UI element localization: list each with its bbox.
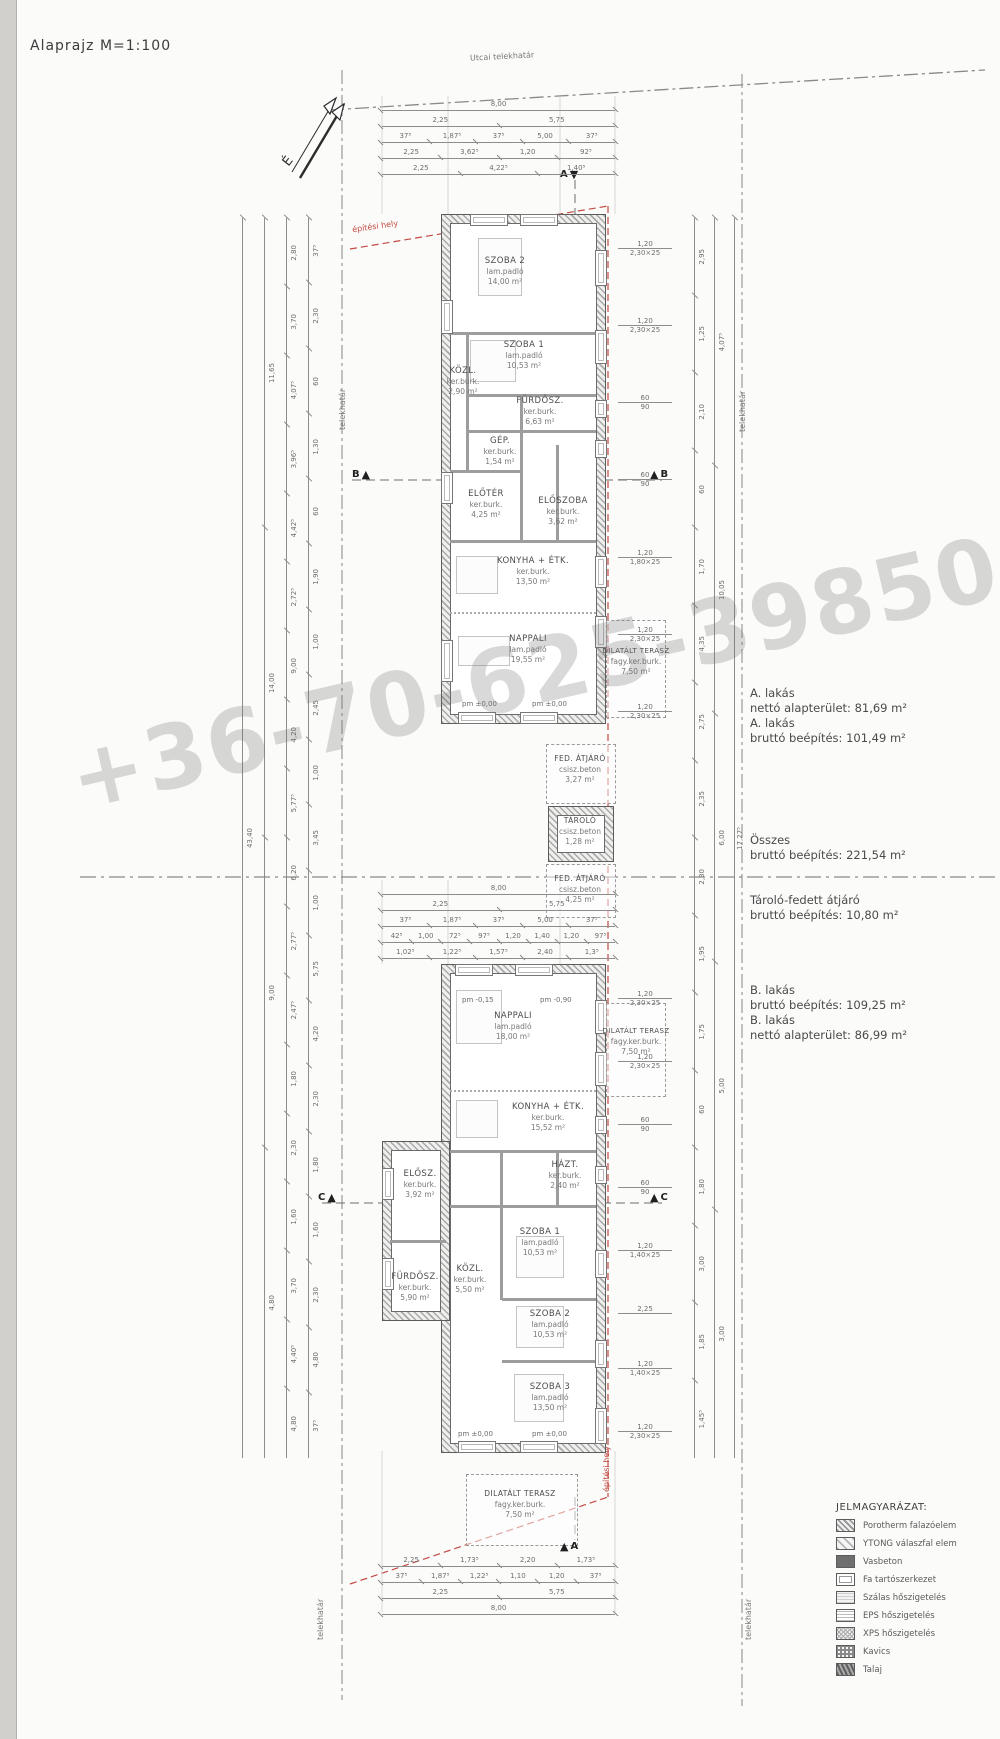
window-dim: 1,202,30×25: [618, 626, 672, 643]
dimension-segment: 5,75: [309, 936, 323, 1001]
dimension-value: 37⁵: [576, 1572, 615, 1583]
partition: [390, 1240, 446, 1243]
window: [458, 1441, 496, 1453]
section-triangle-icon: ▲: [362, 468, 370, 481]
room-area: 3,62 m²: [548, 517, 577, 526]
room-area: 10,53 m²: [533, 1330, 567, 1339]
window: [520, 214, 558, 226]
legend-swatch-icon: [836, 1519, 855, 1532]
dimension-segment: 4,42⁵: [287, 494, 301, 563]
legend-swatch-icon: [836, 1555, 855, 1568]
legend-row: Talaj: [836, 1663, 996, 1676]
room-area: 3,92 m²: [405, 1190, 434, 1199]
partition: [556, 445, 559, 543]
room-label: SZOBA 3 lam.padló 13,50 m²: [530, 1382, 570, 1414]
dimension-value: 2,30: [312, 1091, 320, 1107]
dimension-segment: 1,90: [309, 544, 323, 609]
legend-swatch-icon: [836, 1645, 855, 1658]
room-finish: lam.padló: [531, 1320, 568, 1329]
dimension-segment: 4,20: [287, 700, 301, 769]
window-width: 1,20: [618, 240, 672, 249]
dimension-value: 1,25: [698, 326, 706, 342]
room-name: NAPPALI: [509, 634, 547, 644]
dimension-value: 1,00: [312, 765, 320, 781]
dimension-chain: 2,253,62⁵1,2092⁵: [382, 148, 615, 159]
annotation-line: A. lakás: [750, 716, 907, 731]
room-area: 14,00 m²: [488, 277, 522, 286]
dimension-chain: 2,255,75: [382, 1588, 615, 1599]
room-name: KÖZL.: [456, 1264, 483, 1274]
dimension-chain-vertical: 2,951,252,10601,704,352,752,352,301,951,…: [694, 218, 709, 1458]
dimension-value: 4,20: [290, 727, 298, 743]
dimension-chain: 37⁵1,87⁵37⁵5,0037⁵: [382, 916, 615, 927]
dimension-value: 3,00: [698, 1256, 706, 1272]
legend-label: Fa tartószerkezet: [863, 1575, 936, 1585]
dimension-value: 4,20: [312, 1026, 320, 1042]
room-name: GÉP.: [490, 436, 510, 446]
dimension-value: 2,20: [499, 1556, 557, 1567]
legend-label: EPS hőszigetelés: [863, 1611, 935, 1621]
dimension-value: 3,62⁵: [440, 148, 498, 159]
annotation-line: B. lakás: [750, 1013, 907, 1028]
dimension-value: 2,30: [698, 869, 706, 885]
dimension-value: 92⁵: [557, 148, 615, 159]
dimension-value: 4,40⁵: [290, 1345, 298, 1363]
legend-label: Porotherm falazóelem: [863, 1521, 956, 1531]
room-area: 5,50 m²: [455, 1285, 484, 1294]
dimension-value: 1,80: [312, 1157, 320, 1173]
dimension-value: 1,20: [499, 932, 528, 943]
dimension-value: 1,73⁵: [557, 1556, 615, 1567]
room-area: 13,50 m²: [533, 1403, 567, 1412]
room-label: DILATÁLT TERASZ fagy.ker.burk. 7,50 m²: [484, 1489, 555, 1521]
window: [455, 964, 493, 976]
dimension-chain: 42⁵1,0072⁵97⁵1,201,401,2097⁵: [382, 932, 615, 943]
room-name: NAPPALI: [494, 1011, 532, 1021]
dimension-segment: 4,07⁵: [715, 218, 729, 466]
room-area: 15,52 m²: [531, 1123, 565, 1132]
dimension-segment: 2,10: [695, 373, 709, 451]
dimension-value: 3,96⁵: [290, 450, 298, 468]
furniture: [458, 636, 510, 666]
window-width: 1,20: [618, 1053, 672, 1062]
floor-plan-sheet: Alaprajz M=1:100: [0, 0, 1000, 1739]
dimension-value: 37⁵: [568, 916, 615, 927]
room-area: 2,90 m²: [448, 387, 477, 396]
dimension-chain-vertical: 17,27⁵: [734, 218, 745, 1458]
dimension-value: 5,00: [522, 916, 569, 927]
dimension-segment: 14,00: [265, 528, 279, 838]
dimension-chain: 1,02⁵1,22⁵1,57⁵2,401,3⁵: [382, 948, 615, 959]
room-name: FED. ÁTJÁRÓ: [554, 874, 605, 883]
room-name: FÜRDŐSZ.: [391, 1272, 438, 1282]
dimension-value: 4,07⁵: [290, 381, 298, 399]
right-bottom-boundary-label: telekhatár: [744, 1599, 753, 1640]
dimension-value: 1,95: [698, 946, 706, 962]
window-width: 60: [618, 1116, 672, 1125]
room-label: ELŐSZOBA ker.burk. 3,62 m²: [538, 496, 588, 528]
north-label: É: [280, 154, 297, 170]
dimension-segment: 4,20: [309, 1001, 323, 1066]
room-name: HÁZT.: [552, 1160, 579, 1170]
room-finish: ker.burk.: [454, 1275, 487, 1284]
dimension-segment: 37⁵: [309, 218, 323, 283]
level-marker: pm ±0,00: [458, 1430, 493, 1438]
room-area: 7,50 m²: [505, 1510, 534, 1519]
dimension-value: 43,40: [246, 828, 254, 848]
window: [441, 472, 453, 504]
legend-row: Szálas hőszigetelés: [836, 1591, 996, 1604]
dimension-segment: 43,40: [243, 218, 257, 1458]
dimension-segment: 2,30: [695, 838, 709, 916]
dimension-segment: 2,30: [309, 283, 323, 348]
dimension-value: 60: [312, 507, 320, 516]
room-finish: lam.padló: [486, 267, 523, 276]
room-label: SZOBA 1 lam.padló 10,53 m²: [504, 340, 544, 372]
dimension-value: 3,45: [312, 830, 320, 846]
dimension-value: 2,30: [290, 1140, 298, 1156]
window-height: 2,30×25: [618, 1432, 672, 1440]
dimension-value: 4,42⁵: [290, 519, 298, 537]
window-dim: 1,202,30×25: [618, 703, 672, 720]
left-boundary-label: telekhatár: [338, 389, 347, 430]
dimension-segment: 60: [695, 1071, 709, 1149]
dimension-value: 2,77⁵: [290, 932, 298, 950]
dimension-value: 1,57⁵: [475, 948, 522, 959]
dimension-value: 60: [698, 1105, 706, 1114]
room-name: KÖZL.: [449, 366, 476, 376]
dimension-segment: 3,00: [715, 1210, 729, 1458]
dimension-value: 2,25: [382, 148, 440, 159]
dimension-value: 37⁵: [568, 132, 615, 143]
dimension-value: 2,25: [382, 1556, 440, 1567]
room-finish: ker.burk.: [517, 567, 550, 576]
annotation-b-lakas: B. lakás bruttó beépítés: 109,25 m² B. l…: [750, 983, 907, 1043]
dimension-value: 42⁵: [382, 932, 411, 943]
dimension-segment: 1,80: [287, 1045, 301, 1114]
room-label: HÁZT. ker.burk. 2,40 m²: [549, 1160, 582, 1192]
dimension-value: 1,45⁵: [698, 1410, 706, 1428]
window: [595, 440, 607, 458]
section-marker-b-left: B▲: [352, 468, 370, 481]
dimension-segment: 1,60: [309, 1197, 323, 1262]
dimension-chain-vertical: 43,40: [242, 218, 257, 1458]
window-width: 60: [618, 1179, 672, 1188]
dimension-value: 1,40⁵: [537, 164, 615, 175]
partition: [450, 332, 596, 335]
dimension-value: 72⁵: [440, 932, 469, 943]
dimension-segment: 2,72⁵: [287, 562, 301, 631]
annotation-line: bruttó beépítés: 101,49 m²: [750, 731, 907, 746]
dimension-chain: 8,00: [382, 1604, 615, 1615]
window-width: 1,20: [618, 549, 672, 558]
room-area: 10,53 m²: [523, 1248, 557, 1257]
dimension-chain-vertical: 37⁵2,30601,30601,901,002,451,003,451,005…: [308, 218, 323, 1458]
window: [470, 214, 508, 226]
room-area: 18,00 m²: [496, 1032, 530, 1041]
section-triangle-icon: ▲: [560, 1540, 568, 1553]
annotation-line: bruttó beépítés: 10,80 m²: [750, 908, 898, 923]
window-height: 90: [618, 1188, 672, 1196]
dimension-value: 1,60: [312, 1222, 320, 1238]
room-name: ELŐSZOBA: [538, 496, 588, 506]
dimension-value: 1,80: [698, 1179, 706, 1195]
furniture: [456, 1100, 498, 1138]
window-height: 90: [618, 1125, 672, 1133]
room-name: KONYHA + ÉTK.: [497, 556, 569, 566]
dimension-value: 4,22⁵: [460, 164, 538, 175]
room-finish: ker.burk.: [399, 1283, 432, 1292]
window-height: 1,40×25: [618, 1369, 672, 1377]
room-area: 2,40 m²: [550, 1181, 579, 1190]
annotation-line: Összes: [750, 833, 906, 848]
room-name: ELŐSZ.: [403, 1169, 436, 1179]
dimension-segment: 2,75: [695, 683, 709, 761]
dimension-segment: 5,00: [715, 962, 729, 1210]
window-dim: 1,201,80×25: [618, 549, 672, 566]
annotation-line: B. lakás: [750, 983, 907, 998]
partition: [450, 1150, 596, 1153]
window: [441, 640, 453, 682]
room-finish: ker.burk.: [470, 500, 503, 509]
room-label: TÁROLÓ csisz.beton 1,28 m²: [559, 816, 601, 848]
dimension-value: 5,75: [499, 900, 616, 911]
dimension-segment: 4,80: [287, 1389, 301, 1458]
dimension-value: 5,75: [499, 116, 616, 127]
dimension-value: 1,00: [312, 895, 320, 911]
dimension-segment: 3,70: [287, 287, 301, 356]
legend-swatch-icon: [836, 1537, 855, 1550]
dimension-segment: 2,45: [309, 675, 323, 740]
window: [441, 300, 453, 334]
window: [595, 330, 607, 364]
dimension-segment: 1,60: [287, 1182, 301, 1251]
window: [520, 1441, 558, 1453]
dimension-value: 3,70: [290, 1278, 298, 1294]
dimension-value: 4,80: [268, 1295, 276, 1311]
room-finish: lam.padló: [505, 351, 542, 360]
annotation-line: nettó alapterület: 86,99 m²: [750, 1028, 907, 1043]
window-dim: 6090: [618, 394, 672, 411]
dimension-value: 1,20: [557, 932, 586, 943]
dimension-segment: 2,30: [309, 1066, 323, 1131]
room-area: 1,54 m²: [485, 457, 514, 466]
window-dims-b: 1,202,30×251,202,30×25609060901,201,40×2…: [618, 990, 672, 1440]
dimension-segment: 4,80: [265, 1148, 279, 1458]
dimension-value: 2,95: [698, 249, 706, 265]
dimension-segment: 17,27⁵: [735, 218, 745, 1458]
window: [595, 250, 607, 286]
window-dims-a: 1,202,30×251,202,30×25609060901,201,80×2…: [618, 240, 672, 720]
dimension-segment: 1,80: [309, 1132, 323, 1197]
window: [595, 556, 607, 588]
dimension-value: 1,87⁵: [421, 1572, 460, 1583]
dimension-value: 1,20: [499, 148, 557, 159]
window-dim: 6090: [618, 1179, 672, 1196]
legend-swatch-icon: [836, 1573, 855, 1586]
dimension-value: 1,90: [312, 569, 320, 585]
room-name: SZOBA 1: [520, 1227, 560, 1237]
dimension-segment: 3,96⁵: [287, 425, 301, 494]
dimension-segment: 2,30: [309, 1262, 323, 1327]
dimension-value: 2,25: [382, 164, 460, 175]
window: [595, 400, 607, 418]
room-label: KONYHA + ÉTK. ker.burk. 13,50 m²: [497, 556, 569, 588]
window: [520, 712, 558, 724]
legend-swatch-icon: [836, 1627, 855, 1640]
dimension-value: 2,35: [698, 791, 706, 807]
dimension-value: 2,80: [290, 245, 298, 261]
dimension-segment: 11,65: [265, 218, 279, 528]
dimension-value: 1,87⁵: [429, 916, 476, 927]
dimension-segment: 9,00: [265, 838, 279, 1148]
room-finish: fagy.ker.burk.: [495, 1500, 546, 1509]
room-finish: ker.burk.: [549, 1171, 582, 1180]
partition: [502, 1360, 596, 1363]
dimension-value: 2,30: [312, 308, 320, 324]
legend-label: YTONG válaszfal elem: [863, 1539, 957, 1549]
window-width: 1,20: [618, 703, 672, 712]
dimension-chain-vertical: 4,07⁵10,056,005,003,00: [714, 218, 729, 1458]
dimension-segment: 1,75: [695, 993, 709, 1071]
window: [595, 1408, 607, 1444]
room-finish: ker.burk.: [532, 1113, 565, 1122]
dimension-value: 11,65: [268, 363, 276, 383]
window: [595, 1340, 607, 1368]
window-width: 60: [618, 394, 672, 403]
room-name: SZOBA 1: [504, 340, 544, 350]
dimension-value: 4,80: [312, 1352, 320, 1368]
dimension-chain: 8,00: [382, 100, 615, 111]
dimension-value: 4,07⁵: [718, 333, 726, 351]
dimension-value: 1,10: [498, 1572, 537, 1583]
window-width: 2,25: [618, 1305, 672, 1314]
dimension-value: 8,00: [382, 1604, 615, 1615]
left-bottom-boundary-label: telekhatár: [316, 1599, 325, 1640]
dimension-value: 6,00: [718, 830, 726, 846]
dimension-value: 10,05: [718, 580, 726, 600]
room-label: FÜRDŐSZ. ker.burk. 6,63 m²: [516, 396, 563, 428]
room-name: TÁROLÓ: [564, 816, 596, 825]
window: [595, 1166, 607, 1184]
dimension-segment: 1,00: [309, 610, 323, 675]
dimension-chain: 8,00: [382, 884, 615, 895]
north-indicator: É: [278, 96, 368, 196]
window-height: 2,30×25: [618, 999, 672, 1007]
legend-row: Porotherm falazóelem: [836, 1519, 996, 1532]
legend-label: Szálas hőszigetelés: [863, 1593, 946, 1603]
dimension-value: 5,75: [312, 961, 320, 977]
dimension-value: 97⁵: [586, 932, 615, 943]
window-height: 1,40×25: [618, 1251, 672, 1259]
dimension-value: 9,00: [290, 658, 298, 674]
dimension-value: 1,22⁵: [460, 1572, 499, 1583]
dimension-segment: 5,77⁵: [287, 769, 301, 838]
room-area: 5,90 m²: [400, 1293, 429, 1302]
dimension-value: 8,00: [382, 884, 615, 895]
window-height: 2,30×25: [618, 712, 672, 720]
legend-row: Fa tartószerkezet: [836, 1573, 996, 1586]
dimension-segment: 2,30: [287, 1114, 301, 1183]
room-name: DILATÁLT TERASZ: [484, 1489, 555, 1498]
dimension-segment: 1,45⁵: [695, 1381, 709, 1459]
window-dim: 1,202,30×25: [618, 990, 672, 1007]
dimension-segment: 1,30: [309, 414, 323, 479]
dimension-value: 1,00: [411, 932, 440, 943]
room-label: KÖZL. ker.burk. 2,90 m²: [447, 366, 480, 398]
dimension-value: 6,20: [290, 865, 298, 881]
dimension-value: 1,3⁵: [568, 948, 615, 959]
dimension-segment: 1,25: [695, 296, 709, 374]
room-label: KÖZL. ker.burk. 5,50 m²: [454, 1264, 487, 1296]
window-width: 1,20: [618, 1423, 672, 1432]
dimension-value: 5,00: [718, 1078, 726, 1094]
room-finish: lam.padló: [521, 1238, 558, 1247]
dimension-segment: 1,70: [695, 528, 709, 606]
legend-title: JELMAGYARÁZAT:: [836, 1502, 996, 1513]
dimension-segment: 60: [309, 349, 323, 414]
dimension-chain: 2,255,75: [382, 900, 615, 911]
legend-label: Kavics: [863, 1647, 890, 1657]
room-name: ELŐTÉR: [468, 489, 504, 499]
room-name: SZOBA 2: [530, 1309, 570, 1319]
room-label: ELŐSZ. ker.burk. 3,92 m²: [403, 1169, 436, 1201]
room-name: SZOBA 3: [530, 1382, 570, 1392]
dimension-value: 97⁵: [469, 932, 498, 943]
annotation-line: nettó alapterület: 81,69 m²: [750, 701, 907, 716]
room-finish: ker.burk.: [447, 377, 480, 386]
dimension-value: 2,25: [382, 116, 499, 127]
window: [595, 1250, 607, 1278]
dimension-segment: 2,95: [695, 218, 709, 296]
room-name: SZOBA 2: [485, 256, 525, 266]
window-width: 1,20: [618, 1360, 672, 1369]
room-label: SZOBA 1 lam.padló 10,53 m²: [520, 1227, 560, 1259]
window: [458, 712, 496, 724]
dimension-value: 5,77⁵: [290, 794, 298, 812]
legend-row: EPS hőszigetelés: [836, 1609, 996, 1622]
room-finish: ker.burk.: [524, 407, 557, 416]
annotation-line: A. lakás: [750, 686, 907, 701]
window-width: 1,20: [618, 990, 672, 999]
legend-swatch-icon: [836, 1663, 855, 1676]
dimension-value: 37⁵: [312, 245, 320, 257]
section-letter: A: [570, 1541, 578, 1552]
legend-swatch-icon: [836, 1609, 855, 1622]
room-name: FÜRDŐSZ.: [516, 396, 563, 406]
window-height: 2,30×25: [618, 249, 672, 257]
legend: JELMAGYARÁZAT: Porotherm falazóelem YTON…: [836, 1502, 996, 1681]
dimension-value: 1,02⁵: [382, 948, 429, 959]
dimension-value: 3,00: [718, 1326, 726, 1342]
dimension-chain-vertical: 11,6514,009,004,80: [264, 218, 279, 1458]
level-marker: pm ±0,00: [532, 1430, 567, 1438]
dimension-value: 37⁵: [382, 1572, 421, 1583]
annotation-tarolo: Tároló-fedett átjáró bruttó beépítés: 10…: [750, 893, 898, 923]
dimension-segment: 1,00: [309, 871, 323, 936]
legend-row: Kavics: [836, 1645, 996, 1658]
section-triangle-icon: ▲: [327, 1191, 335, 1204]
window-dim: 1,202,30×25: [618, 317, 672, 334]
window-width: 1,20: [618, 317, 672, 326]
window: [382, 1168, 394, 1200]
room-label: NAPPALI lam.padló 18,00 m²: [494, 1011, 532, 1043]
dimension-chain: 2,255,75: [382, 116, 615, 127]
window-dim: 1,202,30×25: [618, 240, 672, 257]
legend-label: XPS hőszigetelés: [863, 1629, 935, 1639]
legend-label: Vasbeton: [863, 1557, 902, 1567]
legend-row: Vasbeton: [836, 1555, 996, 1568]
